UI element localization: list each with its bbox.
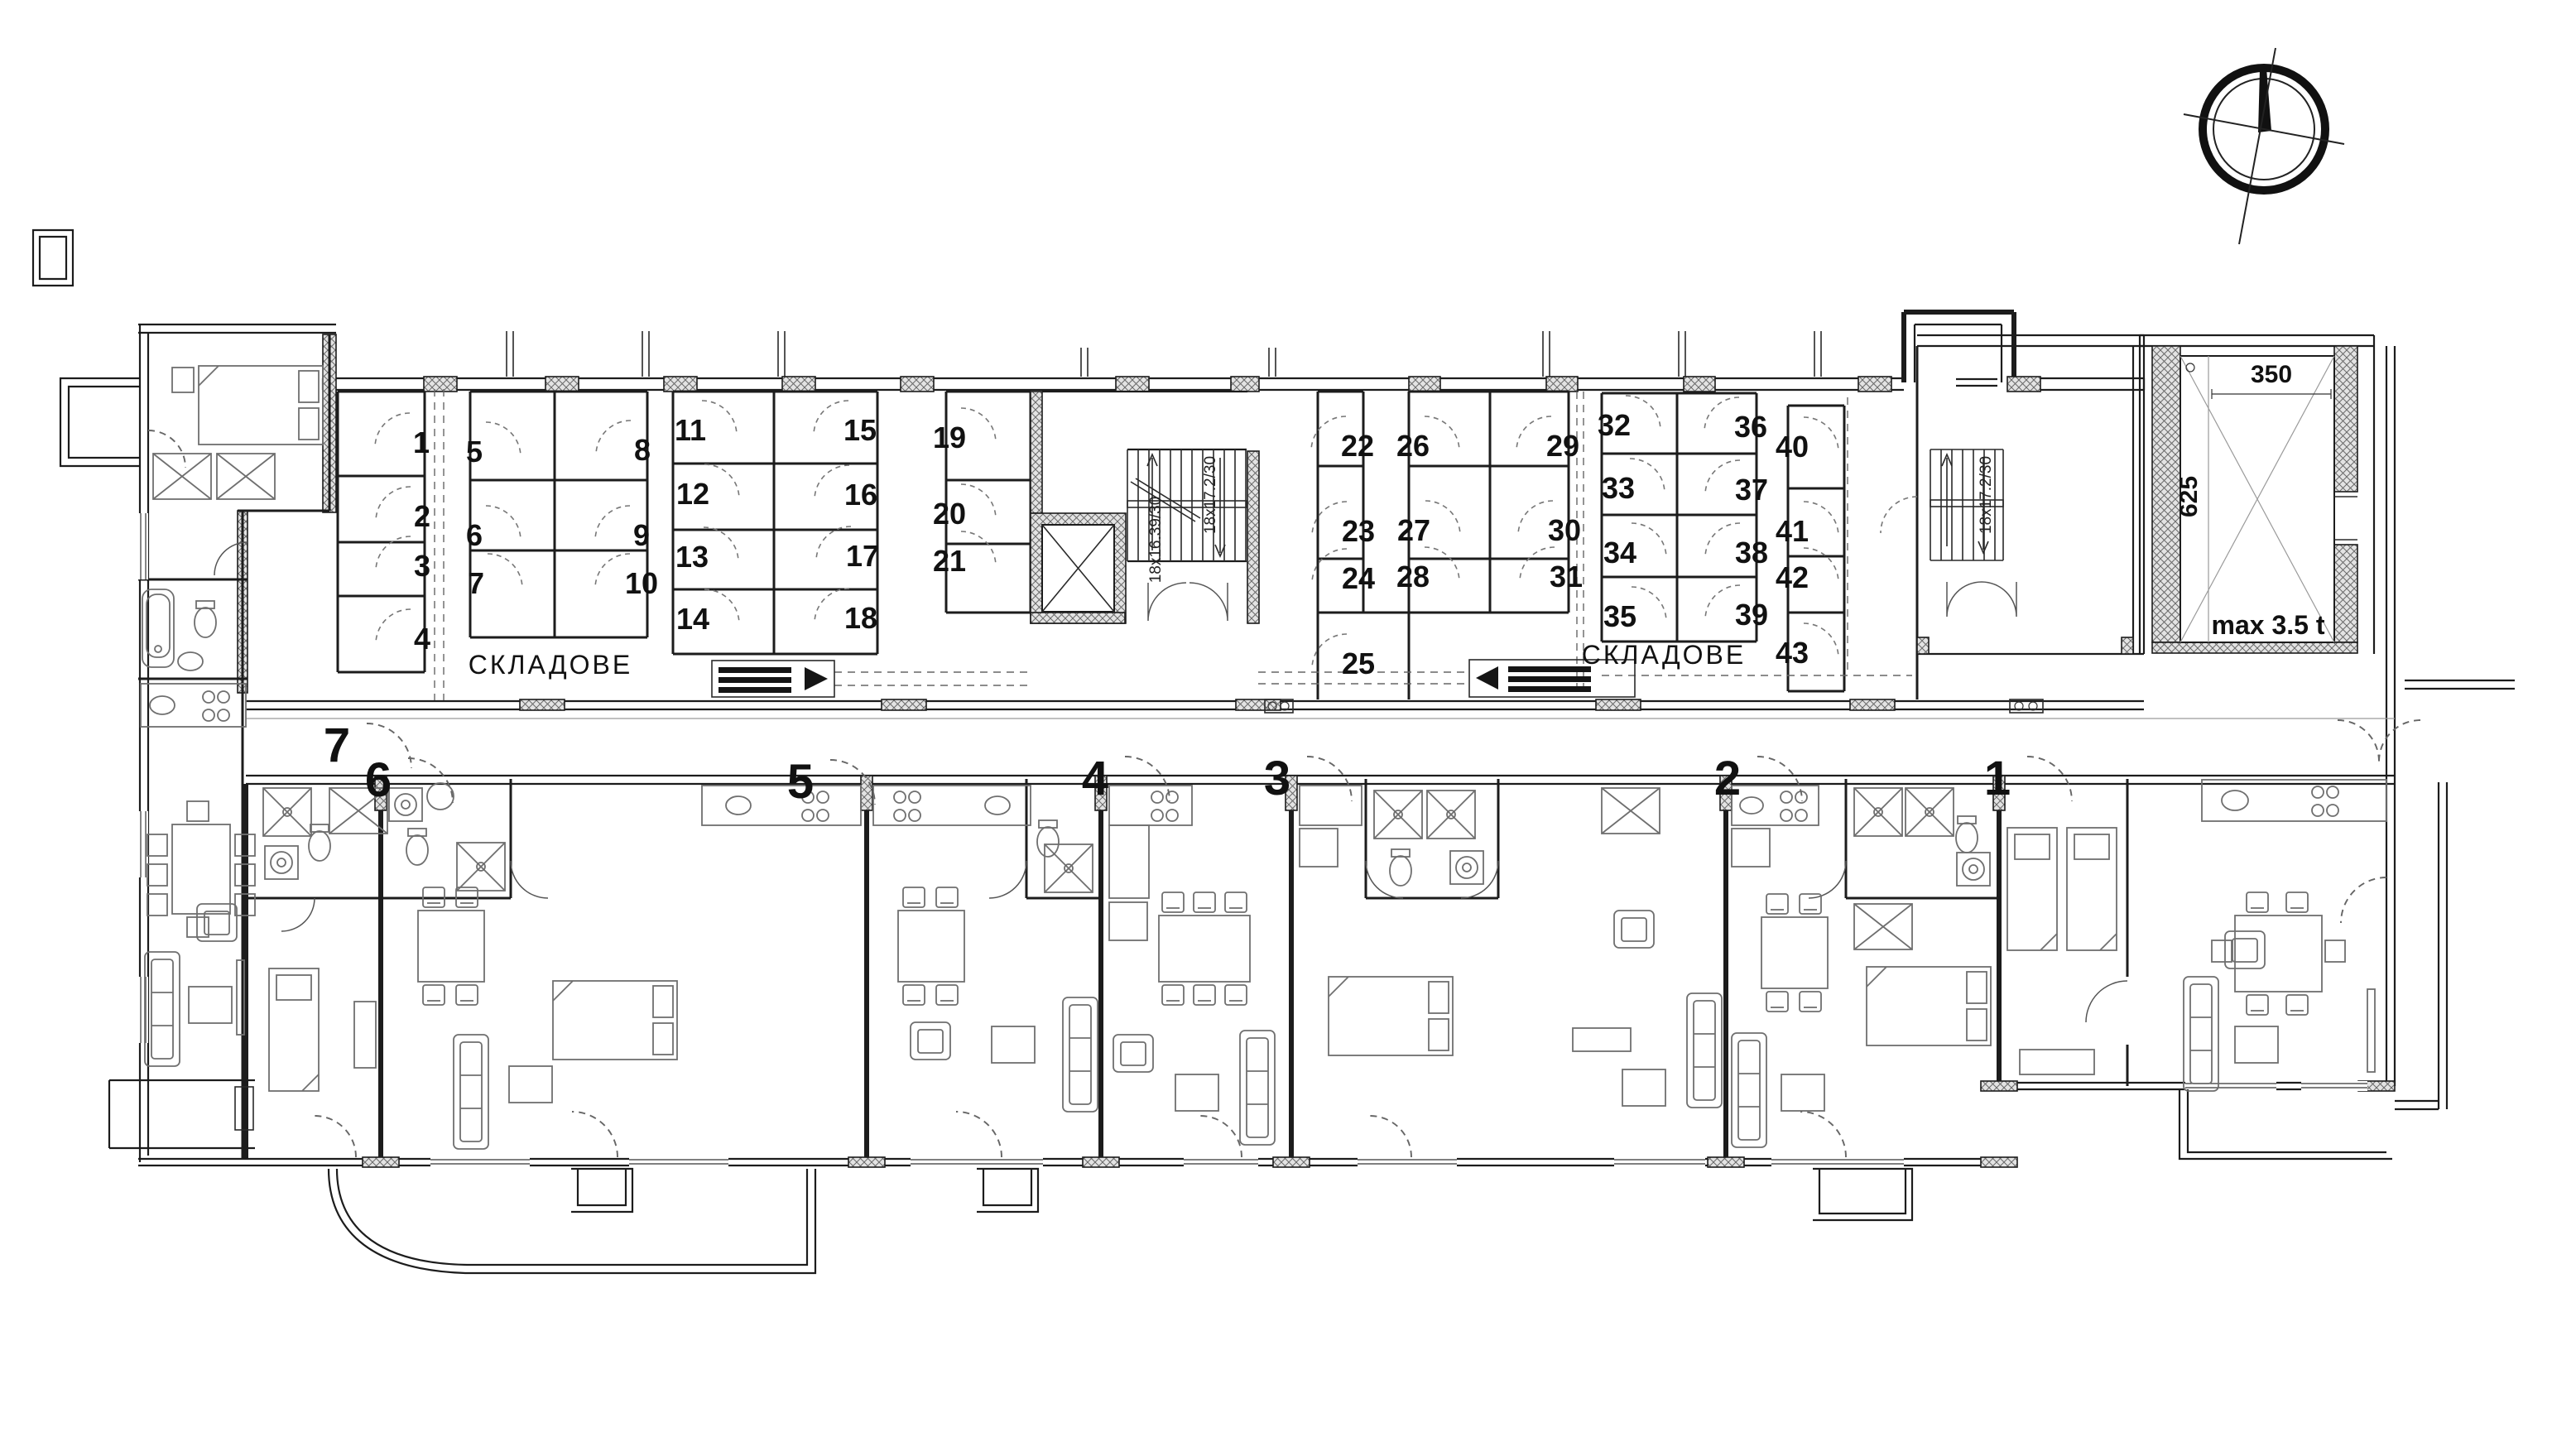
storage-door-arc <box>1425 547 1459 582</box>
boiler <box>427 783 454 810</box>
storage-door-arc <box>376 609 411 644</box>
storage-unit-number: 39 <box>1735 598 1768 632</box>
coffee-table <box>1622 1069 1665 1106</box>
storage-unit-number: 29 <box>1546 429 1579 463</box>
toilet <box>1037 820 1059 857</box>
right-terrace <box>2395 680 2515 1109</box>
storage-unit-number: 7 <box>468 566 484 600</box>
gallery-exit-doors <box>2338 720 2420 762</box>
storage-door-arc <box>595 506 630 541</box>
storage-unit-number: 42 <box>1776 560 1809 594</box>
storage-door-arc <box>376 487 411 521</box>
storage-door-arc <box>486 422 521 457</box>
desk <box>2020 1050 2094 1074</box>
apartment-number: 7 <box>324 718 350 772</box>
storage-unit-number: 19 <box>933 421 966 454</box>
storage-unit-number: 15 <box>843 413 877 447</box>
storage-door-arc <box>1632 587 1666 622</box>
storage-door-arc <box>961 484 996 519</box>
storage-unit-number: 9 <box>633 518 650 552</box>
window <box>1614 1157 1705 1167</box>
coffee-table <box>992 1026 1035 1063</box>
desk <box>354 1002 376 1068</box>
sofa <box>2184 977 2218 1091</box>
shower <box>1045 844 1093 892</box>
window <box>1771 1157 1904 1167</box>
sofa <box>1687 993 1722 1108</box>
apartment-labels: 7654321 <box>324 718 2072 809</box>
shower <box>1906 788 1954 836</box>
shower <box>1374 791 1422 839</box>
storage-unit-number: 6 <box>466 518 483 552</box>
window <box>2185 1081 2276 1091</box>
storage-unit-number: 24 <box>1342 561 1375 595</box>
kitchen-counter <box>141 684 246 727</box>
washing-machine <box>389 788 422 821</box>
kitchen-counter <box>1300 786 1362 825</box>
desk <box>1573 1028 1631 1051</box>
dining-table <box>1761 894 1828 1012</box>
tv-board <box>2367 989 2375 1072</box>
storage-unit-number: 8 <box>634 433 651 467</box>
storage-door-arc <box>961 531 996 566</box>
coffee-table <box>509 1066 552 1103</box>
wardrobe <box>153 454 211 499</box>
apartment-number: 1 <box>1984 752 2011 805</box>
apartment-number: 6 <box>365 753 392 807</box>
storage-unit-number: 26 <box>1396 429 1430 463</box>
sofa <box>145 952 180 1066</box>
storage-unit-number: 13 <box>675 540 709 574</box>
closet <box>1602 788 1660 834</box>
storage-unit-number: 27 <box>1397 513 1430 547</box>
storage-door-arc <box>1425 501 1460 536</box>
storage-door-arc <box>1804 548 1838 583</box>
storage-unit-number: 18 <box>844 601 877 635</box>
storage-unit-number: 14 <box>676 602 709 636</box>
storage-door-arc <box>1804 417 1838 452</box>
apartment-entry-door-arc <box>2027 757 2072 801</box>
stair-stringer <box>1127 501 1247 507</box>
storage-unit-number: 43 <box>1776 636 1809 670</box>
storage-unit-number: 37 <box>1735 473 1768 507</box>
shower <box>457 843 505 891</box>
sofa <box>1732 1033 1766 1147</box>
storage-unit-number: 33 <box>1602 471 1635 505</box>
dining-table <box>898 887 964 1005</box>
wardrobe <box>217 454 275 499</box>
elevator-width-label: 350 <box>2251 361 2292 388</box>
bathtub <box>142 589 174 667</box>
storage-unit-number: 5 <box>466 435 483 469</box>
stair-dimension-text: 18x17.2/30 <box>1978 456 1995 534</box>
armchair <box>1614 911 1654 948</box>
fan-unit <box>712 661 834 697</box>
double-bed <box>553 981 677 1060</box>
apartment-entry-door-arc <box>408 758 453 803</box>
coffee-table <box>1175 1074 1218 1111</box>
storage-area-title: СКЛАДОВЕ <box>1582 640 1746 670</box>
storage-door-arc <box>704 589 739 624</box>
storage-door-arc <box>1626 396 1660 430</box>
elevator-capacity-label: max 3.5 t <box>2212 610 2325 640</box>
toilet <box>1390 849 1411 886</box>
window <box>430 1157 530 1167</box>
window <box>1184 1157 1258 1167</box>
storage-unit-number: 17 <box>846 539 879 573</box>
apartment-number: 2 <box>1714 752 1741 805</box>
kitchen-counter <box>2202 780 2386 821</box>
shower <box>1427 791 1475 839</box>
left-terrace <box>109 1080 255 1148</box>
storage-unit-number: 20 <box>933 497 966 531</box>
double-bed <box>199 366 323 445</box>
toilet <box>195 601 216 637</box>
storage-unit-number: 28 <box>1396 560 1430 594</box>
coffee-table <box>1781 1074 1824 1111</box>
double-bed <box>1867 967 1991 1045</box>
storage-door-arc <box>596 421 631 455</box>
storage-unit-number: 11 <box>675 413 706 447</box>
armchair <box>911 1022 950 1060</box>
kitchen-counter <box>1109 786 1192 825</box>
small-balcony <box>977 1169 1038 1212</box>
small-balcony <box>1813 1169 1912 1220</box>
apartment1-terrace <box>2180 1089 2392 1159</box>
shower <box>263 788 311 836</box>
storage-unit-number: 21 <box>933 544 966 578</box>
storage-unit-number: 4 <box>414 622 430 656</box>
shower <box>1854 788 1902 836</box>
storage-door-arc <box>1632 523 1666 558</box>
storage-door-arc <box>1804 502 1838 536</box>
washing-machine <box>265 846 298 879</box>
stair-side-door <box>1881 497 1917 533</box>
storage-unit-number: 38 <box>1735 536 1768 570</box>
storage-door-arc <box>375 413 410 448</box>
apartment-number: 4 <box>1082 752 1108 805</box>
storage-unit-number: 36 <box>1734 410 1767 444</box>
coffee-table <box>189 987 232 1023</box>
storage-unit-number: 10 <box>625 566 658 600</box>
storage-unit-number: 22 <box>1341 429 1374 463</box>
storage-unit-number: 35 <box>1603 599 1636 633</box>
storage-door-arc <box>704 527 738 562</box>
armchair <box>1113 1035 1153 1072</box>
curved-balcony <box>329 1169 815 1273</box>
storage-unit-number: 23 <box>1342 514 1375 548</box>
window <box>1358 1157 1457 1167</box>
washing-machine <box>1450 851 1483 884</box>
elevator-depth-label: 625 <box>2175 476 2203 517</box>
small-balcony <box>571 1169 632 1212</box>
stair-break-line <box>1131 478 1200 521</box>
storage-door-arc <box>486 506 521 541</box>
fridge <box>1732 829 1770 867</box>
single-bed <box>2007 828 2057 950</box>
sofa <box>454 1035 488 1149</box>
storage-unit-number: 3 <box>414 549 430 583</box>
storage-unit-number: 40 <box>1776 430 1809 464</box>
sofa <box>1240 1031 1275 1145</box>
storage-door-arc <box>961 408 996 443</box>
storage-unit-number: 1 <box>413 425 430 459</box>
storage-unit-number: 32 <box>1598 408 1631 442</box>
stair-dimension-text: 18x17.2/30 <box>1202 456 1219 534</box>
storage-unit-number: 41 <box>1776 514 1809 548</box>
washing-machine <box>1957 853 1990 886</box>
stair-double-door <box>1148 583 1228 621</box>
floor-plan-canvas: 1234567891011121314151617181920212223242… <box>0 0 2576 1437</box>
exterior-walls <box>33 230 2395 1165</box>
apartment-entry-door-arc <box>1307 757 1352 801</box>
storage-unit-number: 25 <box>1342 646 1375 680</box>
apartment-number: 3 <box>1264 752 1290 805</box>
window <box>138 977 148 1043</box>
storage-door-arc <box>704 464 739 499</box>
stair-dimension-text: 18x16.39/30 <box>1147 497 1165 584</box>
storage-area-title: СКЛАДОВЕ <box>469 650 632 680</box>
storage-door-arc <box>1425 416 1459 451</box>
toilet <box>1956 816 1978 853</box>
left-balcony <box>60 378 140 466</box>
window <box>629 1157 728 1167</box>
storage-unit-number: 16 <box>844 478 877 512</box>
apartment-number: 5 <box>787 755 814 809</box>
window <box>138 513 148 579</box>
storage-door-arc <box>1630 459 1665 493</box>
window <box>911 1157 1043 1167</box>
single-bed <box>2067 828 2117 950</box>
double-bed <box>1329 977 1453 1055</box>
storage-door-arc <box>1804 623 1838 658</box>
middle-staircase <box>1031 392 1259 623</box>
wardrobe <box>1854 904 1912 949</box>
storage-unit-number: 34 <box>1603 536 1636 570</box>
dining-table <box>1159 892 1250 1005</box>
storage-unit-number: 30 <box>1548 513 1581 547</box>
sofa <box>1063 997 1098 1112</box>
dining-table <box>418 887 484 1005</box>
storage-door-arc <box>488 554 522 589</box>
single-bed <box>269 968 319 1091</box>
dining-table <box>147 801 255 937</box>
storage-unit-number: 12 <box>676 477 709 511</box>
toilet <box>406 829 428 865</box>
sink <box>178 652 203 670</box>
coffee-table <box>2235 1026 2278 1063</box>
stair-double-door <box>1947 582 2016 617</box>
fridge <box>1109 902 1147 940</box>
compass-icon <box>2184 48 2344 244</box>
fridge <box>1300 829 1338 867</box>
window <box>2301 1081 2367 1091</box>
floor-plan-page: 1234567891011121314151617181920212223242… <box>0 0 2576 1437</box>
storage-unit-number: 31 <box>1550 560 1583 594</box>
storage-door-arc <box>702 401 737 435</box>
storage-unit-number: 2 <box>414 499 430 533</box>
